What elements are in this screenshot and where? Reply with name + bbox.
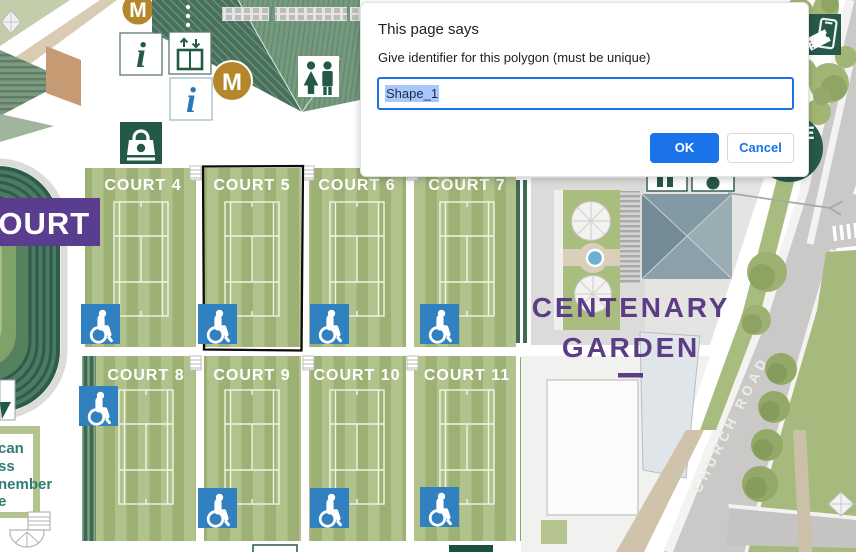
svg-text:i: i <box>136 35 146 75</box>
svg-text:nember: nember <box>0 476 52 493</box>
svg-text:COURT 8: COURT 8 <box>107 367 184 384</box>
svg-text:COURT 5: COURT 5 <box>213 177 290 194</box>
svg-text:can: can <box>0 440 24 457</box>
svg-text:COURT: COURT <box>0 206 90 241</box>
svg-text:M: M <box>129 0 147 22</box>
svg-text:COURT 11: COURT 11 <box>424 367 510 384</box>
svg-text:i: i <box>186 80 196 120</box>
svg-text:e: e <box>0 493 6 510</box>
svg-text:COURT 10: COURT 10 <box>313 367 400 384</box>
svg-text:COURT 4: COURT 4 <box>104 177 181 194</box>
svg-text:GARDEN: GARDEN <box>562 332 700 363</box>
svg-text:CENTENARY: CENTENARY <box>532 292 730 323</box>
svg-text:COURT 6: COURT 6 <box>318 177 395 194</box>
svg-text:M: M <box>222 69 242 96</box>
svg-text:COURT 7: COURT 7 <box>428 177 505 194</box>
svg-text:COURT 9: COURT 9 <box>213 367 290 384</box>
svg-text:ss: ss <box>0 458 15 475</box>
